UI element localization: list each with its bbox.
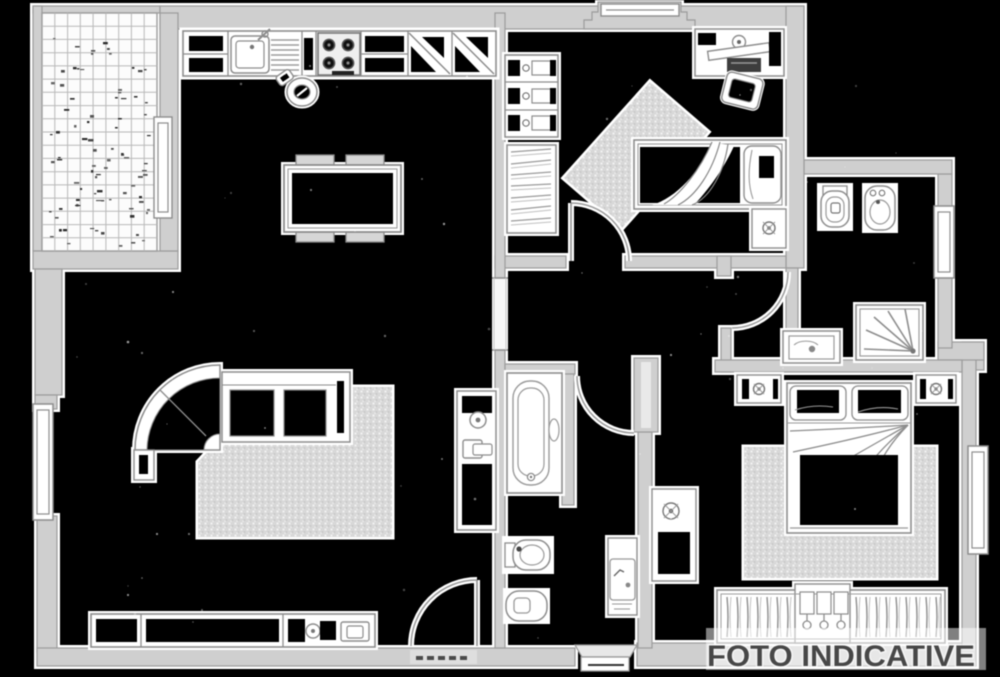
- svg-text:FOTO INDICATIVE: FOTO INDICATIVE: [707, 640, 975, 673]
